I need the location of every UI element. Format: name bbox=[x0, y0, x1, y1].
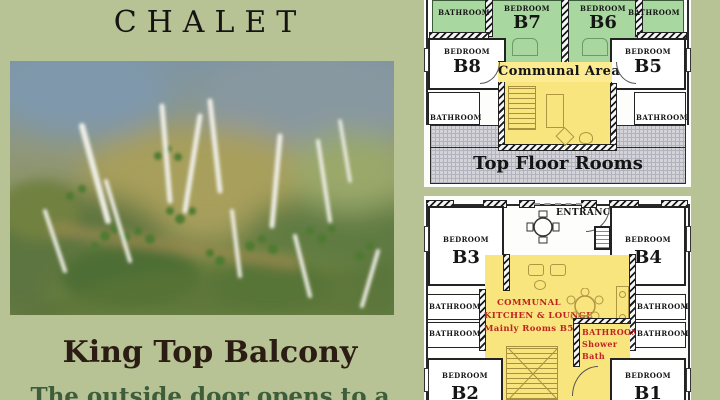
communal-kitchen-line3: Mainly Rooms B5-B8 bbox=[484, 325, 574, 334]
stairs-top-floor bbox=[508, 86, 536, 130]
communal-kitchen-line1: COMMUNAL bbox=[488, 299, 570, 308]
bedroom-b7-label: BEDROOM bbox=[496, 5, 558, 12]
subtitle-heading: King Top Balcony bbox=[0, 335, 420, 370]
acacia-thorn-photo bbox=[10, 61, 394, 315]
page-title: CHALET bbox=[0, 5, 420, 40]
top-floor-caption: Top Floor Rooms bbox=[430, 153, 686, 174]
top-floor-plan: BATHROOM BEDROOM B7 BEDROOM B6 BATHROOM … bbox=[424, 0, 691, 187]
bedroom-b6-label: BEDROOM bbox=[572, 5, 634, 12]
ground-floor-plan: ENTRANCE BEDROOM B3 BEDROOM B4 COMMUNAL … bbox=[424, 196, 691, 400]
room-b2-number: B2 bbox=[431, 385, 499, 400]
stairs-ground-floor bbox=[506, 346, 558, 400]
entrance-closet bbox=[594, 226, 611, 250]
bathroom-left-1-label: BATHROOM bbox=[429, 303, 478, 310]
bedroom-b4-label: BEDROOM bbox=[614, 236, 682, 243]
shower-bathroom-label: BATHROOM bbox=[582, 328, 628, 336]
communal-area-label: Communal Area bbox=[498, 62, 612, 82]
room-b1-number: B1 bbox=[614, 385, 682, 400]
top-bathroom-left-label: BATHROOM bbox=[438, 9, 490, 16]
bathroom-right-2-label: BATHROOM bbox=[637, 330, 684, 337]
entrance-table-icon bbox=[526, 210, 560, 248]
room-b6-number: B6 bbox=[572, 14, 634, 32]
shower-label: Shower bbox=[582, 340, 628, 348]
bedroom-b5-label: BEDROOM bbox=[614, 48, 682, 55]
mid-bathroom-left-label: BATHROOM bbox=[430, 114, 478, 121]
communal-kitchen-line2: KITCHEN & LOUNGE bbox=[484, 312, 574, 321]
bedroom-b8-label: BEDROOM bbox=[432, 48, 502, 55]
top-bathroom-right-label: BATHROOM bbox=[628, 9, 680, 16]
balcony-caption: The outside door opens to a balcony bbox=[0, 383, 420, 400]
bedroom-b2-label: BEDROOM bbox=[431, 372, 499, 379]
mid-bathroom-right-label: BATHROOM bbox=[636, 114, 684, 121]
bathroom-left-2-label: BATHROOM bbox=[429, 330, 478, 337]
room-b7-number: B7 bbox=[496, 14, 558, 32]
bedroom-b3-label: BEDROOM bbox=[432, 236, 500, 243]
bathroom-right-1-label: BATHROOM bbox=[637, 303, 684, 310]
bedroom-b1-label: BEDROOM bbox=[614, 372, 682, 379]
